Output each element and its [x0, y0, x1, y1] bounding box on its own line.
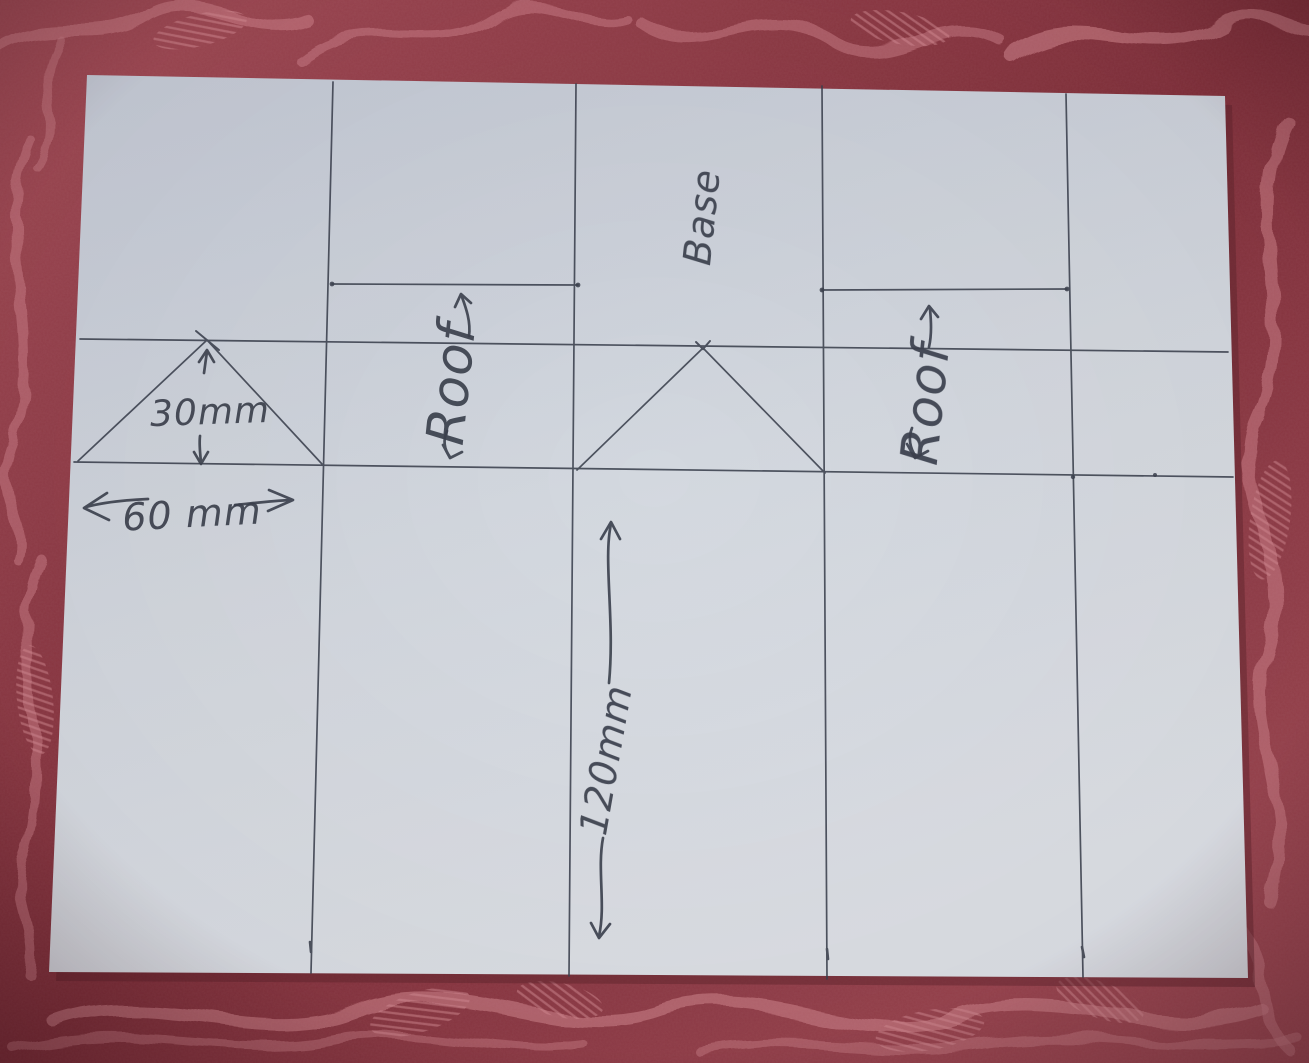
photo-vignette — [0, 0, 1309, 1063]
photo-canvas: Base Roof Roof 30mm 60 mm 120mm — [0, 0, 1309, 1063]
photo-stage: Base Roof Roof 30mm 60 mm 120mm — [0, 0, 1309, 1063]
